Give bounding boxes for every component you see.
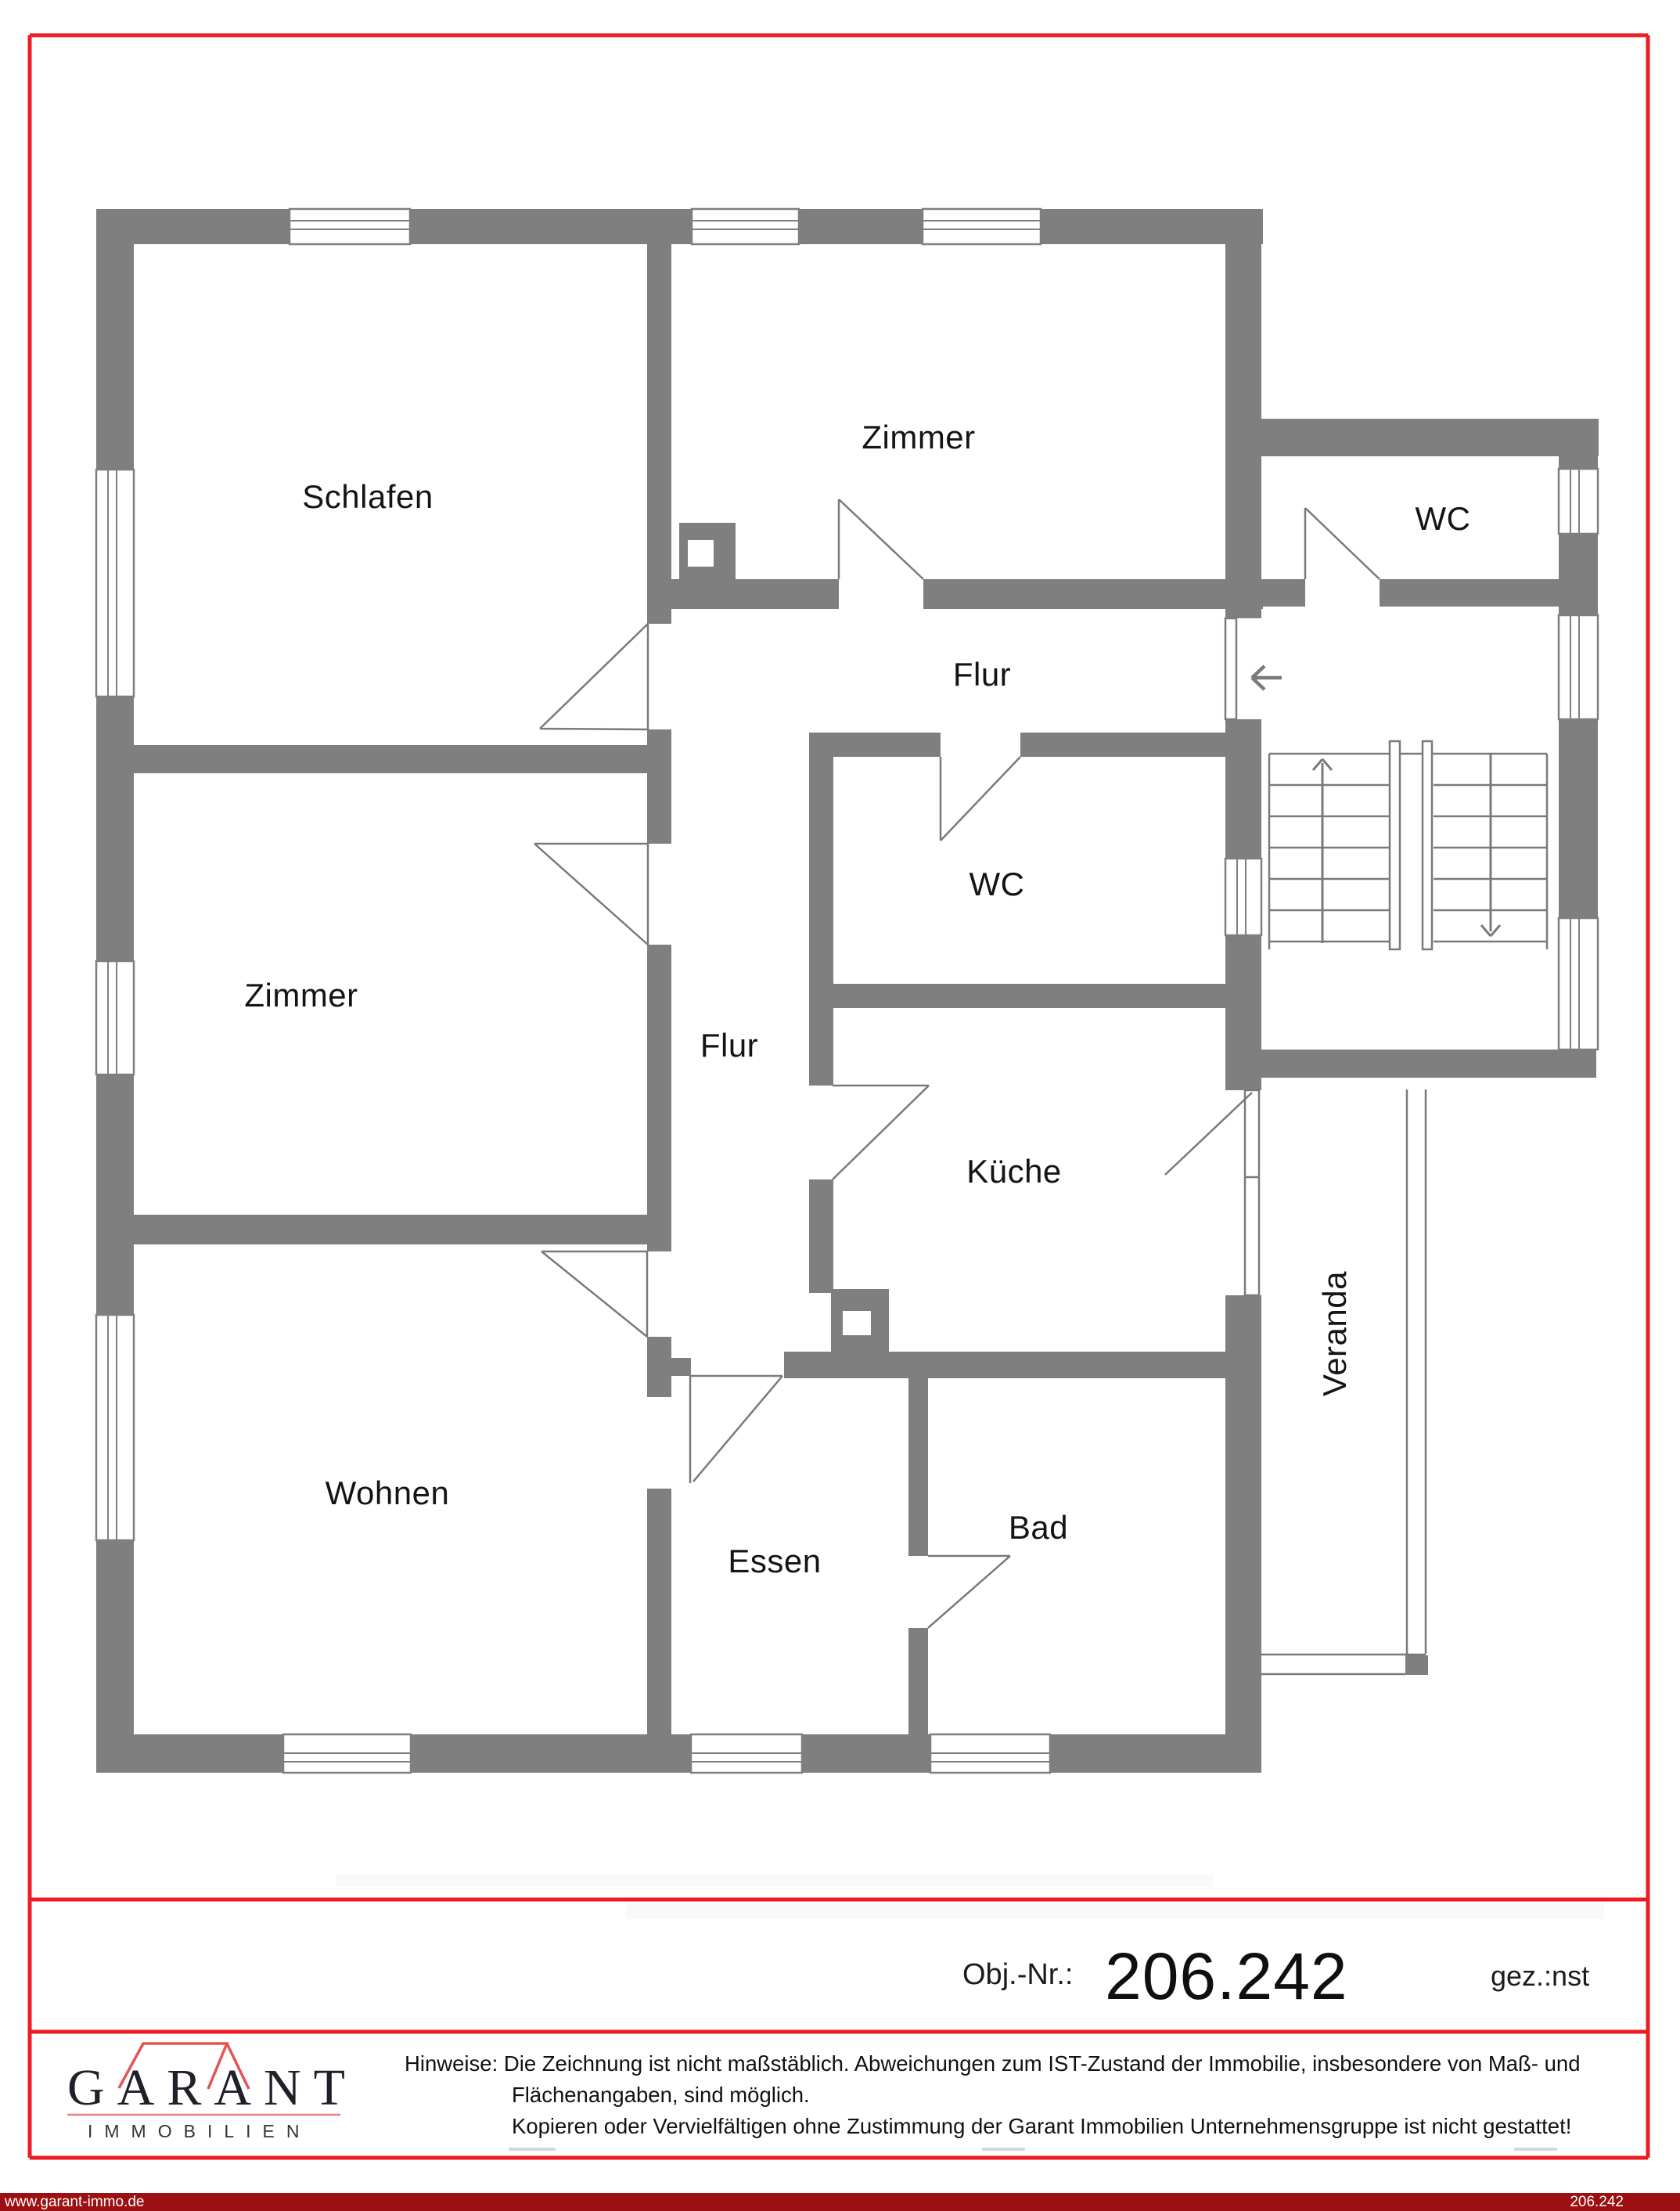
footer-website: www.garant-immo.de [5,2193,144,2211]
object-number-value: 206.242 [1105,1939,1348,2015]
room-label-schlafen: Schlafen [302,478,433,516]
scan-artifact [982,2148,1025,2151]
object-number-label: Obj.-Nr.: [962,1958,1073,1992]
room-label-kueche: Küche [966,1153,1062,1190]
notes-line-3: Kopieren oder Vervielfältigen ohne Zusti… [512,2111,1657,2142]
room-label-wc-top: WC [1416,500,1471,538]
stairs [1269,741,1547,949]
footer-bar: www.garant-immo.de 206.242 [0,2193,1680,2211]
notes-clipped-line: ​ [512,2144,1607,2155]
brand-logo-text: GARANT [67,2058,358,2118]
brand-logo-subtitle: IMMOBILIEN [88,2121,311,2142]
wall-openings [647,540,1380,1489]
scan-artifact [626,1903,1604,1919]
entrance-door [1225,618,1236,719]
stairs-up-arrow-icon [1313,759,1332,943]
notes-line-1: Hinweise: Die Zeichnung ist nicht maßstä… [405,2048,1657,2080]
notes-line-2: Flächenangaben, sind möglich. [512,2080,1657,2111]
drawn-by: gez.:nst [1491,1960,1589,1993]
scan-artifact [1514,2148,1557,2151]
room-label-bad: Bad [1009,1509,1068,1547]
room-label-flur-lower: Flur [700,1027,758,1064]
stairs-down-arrow-icon [1481,754,1500,936]
floorplan-page: Schlafen Zimmer WC Flur WC Zimmer Flur K… [0,0,1680,2211]
footer-object-number: 206.242 [1570,2193,1624,2211]
room-label-zimmer-left: Zimmer [244,977,358,1014]
scan-artifact [336,1874,1213,1887]
room-label-essen: Essen [728,1543,821,1580]
scan-artifact [509,2148,556,2151]
red-border-frame [30,35,1648,2158]
notes-block: Hinweise: Die Zeichnung ist nicht maßstä… [405,2048,1657,2142]
room-label-zimmer-top: Zimmer [862,419,975,456]
room-label-veranda: Veranda [1316,1271,1354,1396]
room-label-wohnen: Wohnen [326,1475,450,1512]
room-label-flur-top: Flur [953,656,1011,693]
room-label-wc-mid: WC [970,866,1025,903]
